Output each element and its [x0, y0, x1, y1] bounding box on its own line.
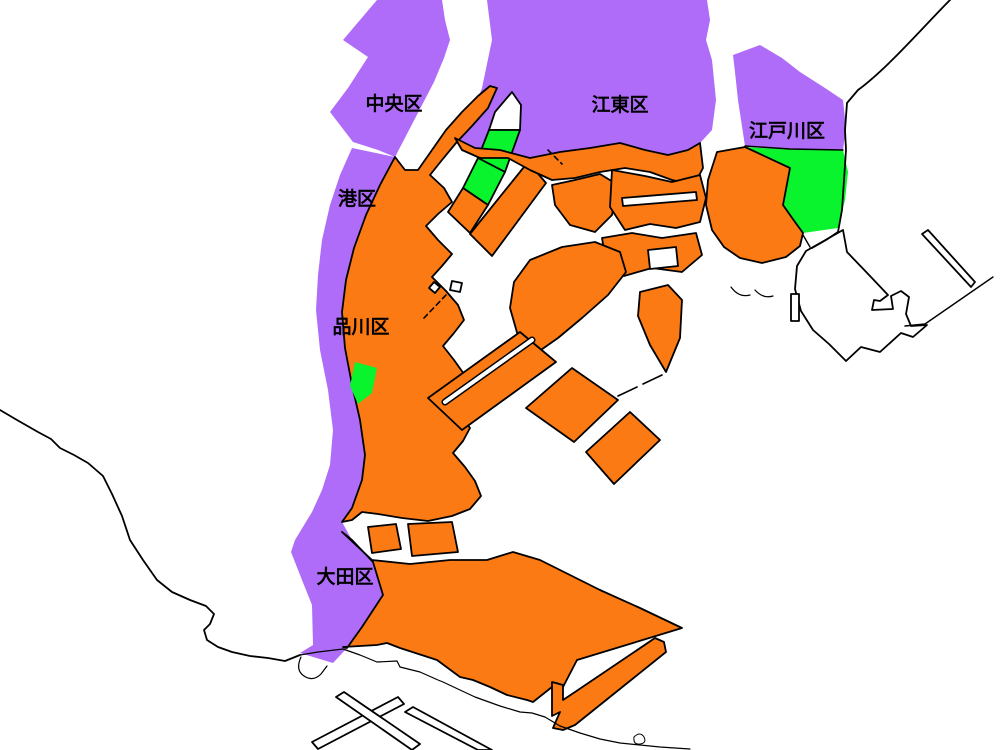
region-canal-island-2 — [408, 522, 458, 556]
ward-label-6: 大田区 — [316, 565, 373, 588]
region-aomi-diamond-2 — [586, 412, 660, 484]
region-haneda-runway-2 — [336, 692, 420, 750]
tokyo-bay-ward-map: 中央区江東区江戸川区港区品川区大田区 — [0, 0, 1000, 750]
coast-mainland-southwest — [0, 410, 300, 661]
region-urayasu-runway-strip — [922, 230, 975, 287]
ward-label-1: 中央区 — [365, 92, 422, 115]
region-kasai-rect-islet — [791, 294, 799, 321]
region-toyosu-island — [552, 174, 618, 232]
region-aomi-diamond-1 — [526, 368, 618, 442]
coast-kasai-beach-arc-2 — [755, 290, 773, 297]
ward-label-4: 港区 — [338, 188, 376, 210]
coast-haneda-loop — [634, 734, 645, 744]
region-islet-square — [450, 281, 462, 292]
region-chuo-mainland — [330, 0, 450, 157]
ward-label-2: 江東区 — [591, 93, 648, 116]
bridge-gate-west — [618, 387, 637, 396]
bridge-gate-east — [643, 375, 662, 384]
kasai-to-urayasu-link — [803, 235, 810, 247]
coast-kasai-beach-arc-1 — [731, 287, 750, 296]
region-yumenoshima-hole — [648, 247, 678, 269]
map-canvas: 中央区江東区江戸川区港区品川区大田区 — [0, 0, 1000, 750]
region-wakasu — [638, 285, 682, 372]
ward-label-3: 江戸川区 — [749, 120, 825, 142]
region-urayasu-outline — [795, 230, 927, 361]
region-canal-island-1 — [368, 524, 401, 553]
ward-label-5: 品川区 — [332, 316, 389, 338]
coast-urayasu-diagonal — [905, 277, 993, 326]
region-ariake-mass — [510, 242, 626, 352]
coast-haneda-harbor — [299, 657, 327, 679]
